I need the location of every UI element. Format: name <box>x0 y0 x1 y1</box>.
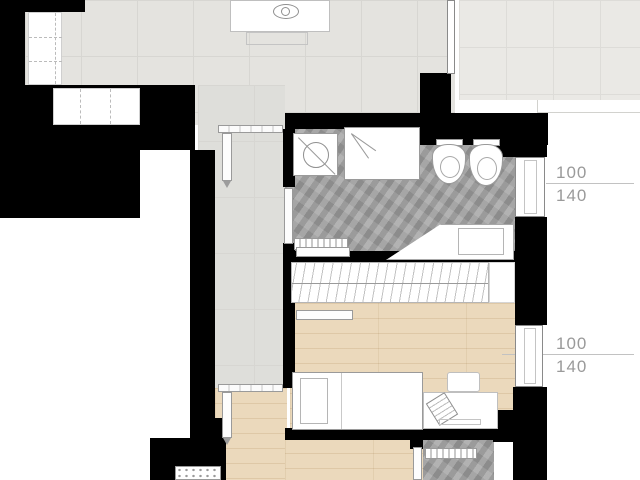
wall-corridor-left <box>190 150 215 446</box>
window-lower <box>515 325 543 387</box>
kitchen-island-shelf <box>246 32 308 45</box>
vanity-corner-line <box>351 133 376 151</box>
window-pane <box>524 160 537 214</box>
window-upper <box>515 157 545 217</box>
shower <box>293 133 338 176</box>
cooktop-burner-icon <box>281 7 290 16</box>
bedroom-door-leaf <box>296 310 353 320</box>
closet-divider-line <box>110 89 111 124</box>
second-bathroom-towel-radiator <box>425 448 477 459</box>
terrace-floor <box>455 0 640 100</box>
bathtub-inner <box>458 228 504 255</box>
upper-dimension-line <box>546 183 634 184</box>
closet-shelf-line <box>29 61 62 62</box>
closet-divider-line <box>80 89 81 124</box>
floor-plan-canvas: 100 140 100 140 <box>0 0 640 480</box>
built-in-closet <box>53 88 140 125</box>
wall-left-lower-block <box>0 150 140 218</box>
washbasin-vanity <box>344 127 420 180</box>
pillow <box>300 378 328 424</box>
closet-shelf-line <box>55 13 56 84</box>
entry-door-swing-arrow-icon <box>223 181 231 188</box>
bathroom-door-leaf <box>284 188 293 244</box>
bidet-bowl-icon <box>440 156 460 178</box>
closet-shelf-line <box>29 37 62 38</box>
desk-chair <box>447 372 480 392</box>
desk <box>423 392 498 429</box>
wall-right-middle <box>515 217 547 325</box>
kitchen-island <box>230 0 330 32</box>
wall-top-left-edge <box>0 0 85 12</box>
toilet-bowl-icon <box>477 157 497 180</box>
corridor-end-door-swing-arrow-icon <box>223 438 231 445</box>
tall-closet <box>28 12 62 85</box>
bed-divider-line <box>341 373 342 429</box>
second-bathroom-door-leaf <box>413 447 422 480</box>
second-room-floor-bottom <box>285 438 425 480</box>
terrace-edge-line <box>537 100 640 113</box>
wardrobe-rail-line <box>292 283 488 284</box>
pen-tray <box>439 419 481 425</box>
corridor-end-door-leaf <box>222 392 232 438</box>
wall-right-upper <box>495 113 547 157</box>
entry-door-leaf <box>222 133 232 181</box>
lower-window-dim-bottom: 140 <box>556 357 587 376</box>
entry-door-frame <box>218 125 283 133</box>
vanity-corner-line <box>351 133 369 158</box>
wall-terrace-divider <box>420 73 451 115</box>
lower-window-dim-top: 100 <box>556 334 587 353</box>
upper-window-dim-bottom: 140 <box>556 186 587 205</box>
second-room-radiator <box>175 466 221 480</box>
window-pane <box>524 328 536 384</box>
single-bed <box>292 372 423 430</box>
wardrobe-side-shelf <box>489 262 515 303</box>
terrace-glass-door <box>447 0 455 74</box>
wardrobe-rail <box>291 262 489 303</box>
closet-door-leaf <box>296 247 350 257</box>
upper-window-dim-top: 100 <box>556 163 587 182</box>
corridor-end-door-frame <box>218 384 283 392</box>
